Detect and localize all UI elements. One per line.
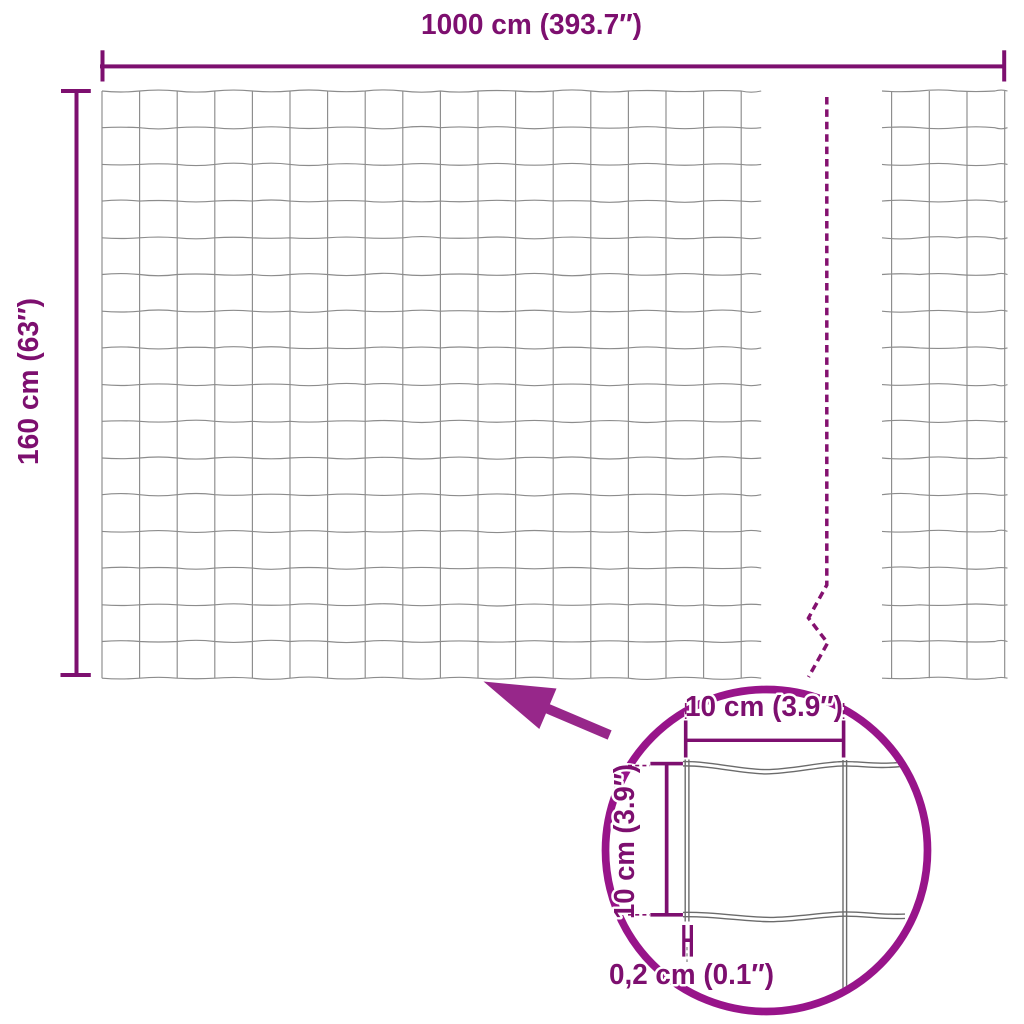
svg-text:10 cm (3.9″): 10 cm (3.9″) <box>685 691 843 723</box>
svg-text:10 cm (3.9″): 10 cm (3.9″) <box>609 764 641 919</box>
svg-text:0,2 cm (0.1″): 0,2 cm (0.1″) <box>609 959 774 991</box>
svg-text:1000 cm (393.7″): 1000 cm (393.7″) <box>421 9 642 41</box>
svg-text:160 cm (63″): 160 cm (63″) <box>13 298 45 465</box>
